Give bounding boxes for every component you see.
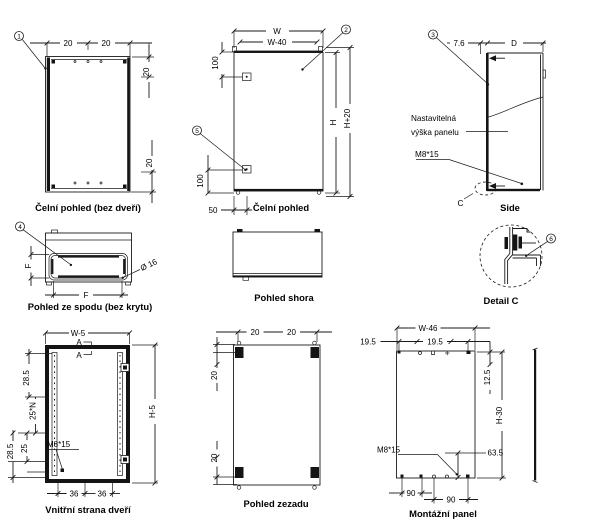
label-bolt-door: M8*15 xyxy=(47,440,71,449)
dim-125: 12.5 xyxy=(483,369,492,385)
label-adjustable-line2: výška panelu xyxy=(411,128,459,137)
enclosure-top xyxy=(233,232,322,277)
dim-50: 50 xyxy=(209,206,218,215)
dim-rear-left-upper: 20 xyxy=(210,371,219,380)
callout-6-number: 6 xyxy=(549,236,553,243)
callout-5-number: 5 xyxy=(195,128,199,135)
mount-bracket xyxy=(235,467,244,478)
view-top: Pohled shora xyxy=(233,229,322,303)
dim-top-left: 20 xyxy=(64,39,73,48)
dim-90-right: 90 xyxy=(447,495,456,504)
enclosure-frame xyxy=(46,57,131,193)
dim-w: W xyxy=(273,27,281,36)
panel-edge-profile xyxy=(534,350,536,481)
view-title-side: Side xyxy=(500,202,520,213)
dim-right-lower: 20 xyxy=(145,158,154,167)
dim-36-left: 36 xyxy=(70,489,79,498)
view-front: W W-40 2 5 100 100 50 H xyxy=(193,25,355,215)
view-rear: 20 20 20 20 Pohled zezadu xyxy=(210,328,332,509)
dim-7-6: 7.6 xyxy=(453,39,465,48)
dim-h5: H-5 xyxy=(148,405,157,418)
callout-2-number: 2 xyxy=(344,27,348,34)
dim-rear-left-lower: 20 xyxy=(210,453,219,462)
dim-100-top: 100 xyxy=(211,56,220,70)
callout-1-number: 1 xyxy=(17,34,21,41)
enclosure-rear xyxy=(234,345,321,485)
dim-rear-top-left: 20 xyxy=(251,328,260,337)
view-title-door-inner: Vnitřní strana dveří xyxy=(45,504,131,515)
panel-depth-curve xyxy=(489,97,543,117)
dim-36-right: 36 xyxy=(98,489,107,498)
mount-bracket xyxy=(235,347,244,358)
dim-h: H xyxy=(329,119,338,125)
dim-rear-top-right: 20 xyxy=(287,328,296,337)
view-bottom: 4 F F Ø 16 Pohled ze spodu (bez krytu) xyxy=(16,222,160,312)
view-title-mounting-panel: Montážní panel xyxy=(409,508,477,519)
view-title-bottom: Pohled ze spodu (bez krytu) xyxy=(28,301,153,312)
dim-635: 63.5 xyxy=(488,449,504,458)
view-front-no-door: 1 20 20 20 20 Čelní pohled (bez dveří) xyxy=(15,32,157,214)
dim-h30: H-30 xyxy=(495,406,504,424)
dim-w46: W-46 xyxy=(419,324,439,333)
dim-90-left: 90 xyxy=(407,489,416,498)
view-title-front-no-door: Čelní pohled (bez dveří) xyxy=(35,202,141,213)
label-bolt-panel: M8*15 xyxy=(377,446,401,455)
section-label-a2: A xyxy=(76,351,82,360)
door-edge xyxy=(486,53,489,191)
detail-c-marker xyxy=(475,182,496,195)
view-title-detail-c: Detail C xyxy=(484,295,519,306)
dim-285-bottom: 28.5 xyxy=(6,443,15,459)
dim-h20: H+20 xyxy=(343,108,352,128)
view-title-rear: Pohled zezadu xyxy=(243,498,308,509)
dim-25n: 25*N xyxy=(29,402,38,420)
view-title-top: Pohled shora xyxy=(254,292,314,303)
view-title-front: Čelní pohled xyxy=(253,202,310,213)
dim-diameter: Ø 16 xyxy=(139,257,159,273)
mounting-panel-face xyxy=(397,351,476,478)
section-label-a1: A xyxy=(76,338,82,347)
callout-3-number: 3 xyxy=(431,32,435,39)
dim-d: D xyxy=(511,39,517,48)
drawing-svg: 1 20 20 20 20 Čelní pohled (bez dveří) W xyxy=(0,0,603,527)
dim-285-top: 28.5 xyxy=(22,370,31,386)
view-side: 3 7.6 D Nastavitelná výška panelu M8*15 … xyxy=(411,30,546,213)
callout-4-number: 4 xyxy=(18,224,22,231)
dim-f-horizontal: F xyxy=(84,291,89,300)
view-door-inner: W-5 A A 28.5 25*N 25 28.5 M8*15 H-5 xyxy=(6,329,158,515)
mount-bracket xyxy=(311,467,320,478)
view-mounting-panel: W-46 19.5 19.5 12.5 H-30 63.5 M8*15 9 xyxy=(360,324,537,519)
mount-bracket xyxy=(311,347,320,358)
label-adjustable-line1: Nastavitelná xyxy=(411,114,457,123)
dim-100-bottom: 100 xyxy=(196,174,205,188)
door-frame xyxy=(47,347,128,481)
view-detail-c: 6 Detail C xyxy=(480,225,556,306)
dim-w5: W-5 xyxy=(71,329,86,338)
dim-w40: W-40 xyxy=(268,38,288,47)
dim-f-vertical: F xyxy=(24,263,33,268)
technical-drawing-canvas: 1 20 20 20 20 Čelní pohled (bez dveří) W xyxy=(0,0,603,527)
dim-25: 25 xyxy=(20,444,29,453)
dim-195-left: 19.5 xyxy=(360,337,376,346)
label-c: C xyxy=(458,199,464,208)
label-bolt-side: M8*15 xyxy=(415,150,439,159)
dim-195-right: 19.5 xyxy=(427,337,443,346)
dim-top-right: 20 xyxy=(102,39,111,48)
dim-right-upper: 20 xyxy=(142,67,151,76)
